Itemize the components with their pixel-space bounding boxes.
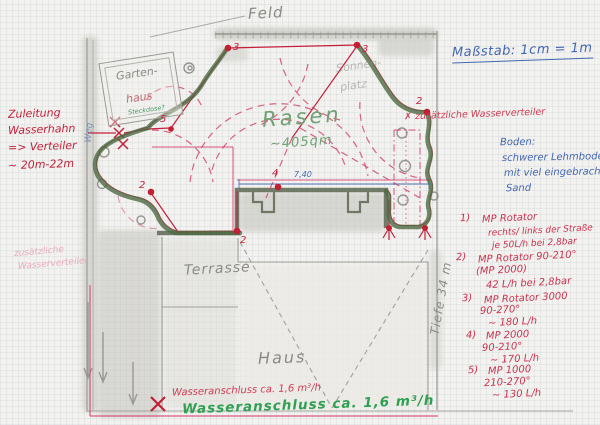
sprinkler-item-text: 90-270° [480, 305, 521, 318]
sprinkler-point-label: 2 [416, 96, 422, 107]
sprinkler-point-label: 5 [160, 114, 166, 125]
dimension-740: 7,40 [294, 171, 312, 179]
boden-note: schwerer Lehmboden [502, 152, 600, 164]
terrasse-label: Terrasse [184, 260, 251, 278]
weg-note: Weg [84, 122, 95, 143]
sprinkler-item-text: 90-210° [482, 342, 523, 355]
rasen-label: Rasen [261, 103, 342, 131]
sprinkler-item-number: 3) [462, 294, 473, 305]
zuleitung-note: Wasserhahn [8, 123, 76, 137]
boden-note: Boden: [500, 138, 535, 149]
sprinkler-point-label: 3 [233, 42, 239, 53]
sprinkler-point-label: 2 [139, 180, 145, 191]
feld-label: Feld [248, 5, 284, 23]
boden-note: Sand [506, 184, 531, 195]
scanned-garden-plan: 3 3 2 2 2 4 5 Feld Maßstab: 1cm = 1m Ras… [0, 0, 600, 425]
sprinkler-point-label: 2 [240, 235, 246, 246]
sprinkler-point-label: 3 [362, 44, 368, 55]
zuleitung-note: Zuleitung [8, 107, 61, 120]
boden-note: mit viel eingebrachtem [504, 167, 600, 180]
sprinkler-item-number: 1) [460, 214, 471, 225]
sprinkler-point-label: 4 [272, 168, 278, 179]
sprinkler-item-number: 5) [468, 366, 479, 377]
sprinkler-item-number: 2) [456, 253, 467, 264]
haus-label: Haus [258, 349, 307, 367]
zuleitung-note: ~ 20m-22m [8, 158, 74, 172]
sprinkler-item-number: 4) [466, 331, 477, 342]
zuleitung-note: => Verteiler [8, 140, 77, 154]
garden-house-outline [98, 51, 183, 126]
